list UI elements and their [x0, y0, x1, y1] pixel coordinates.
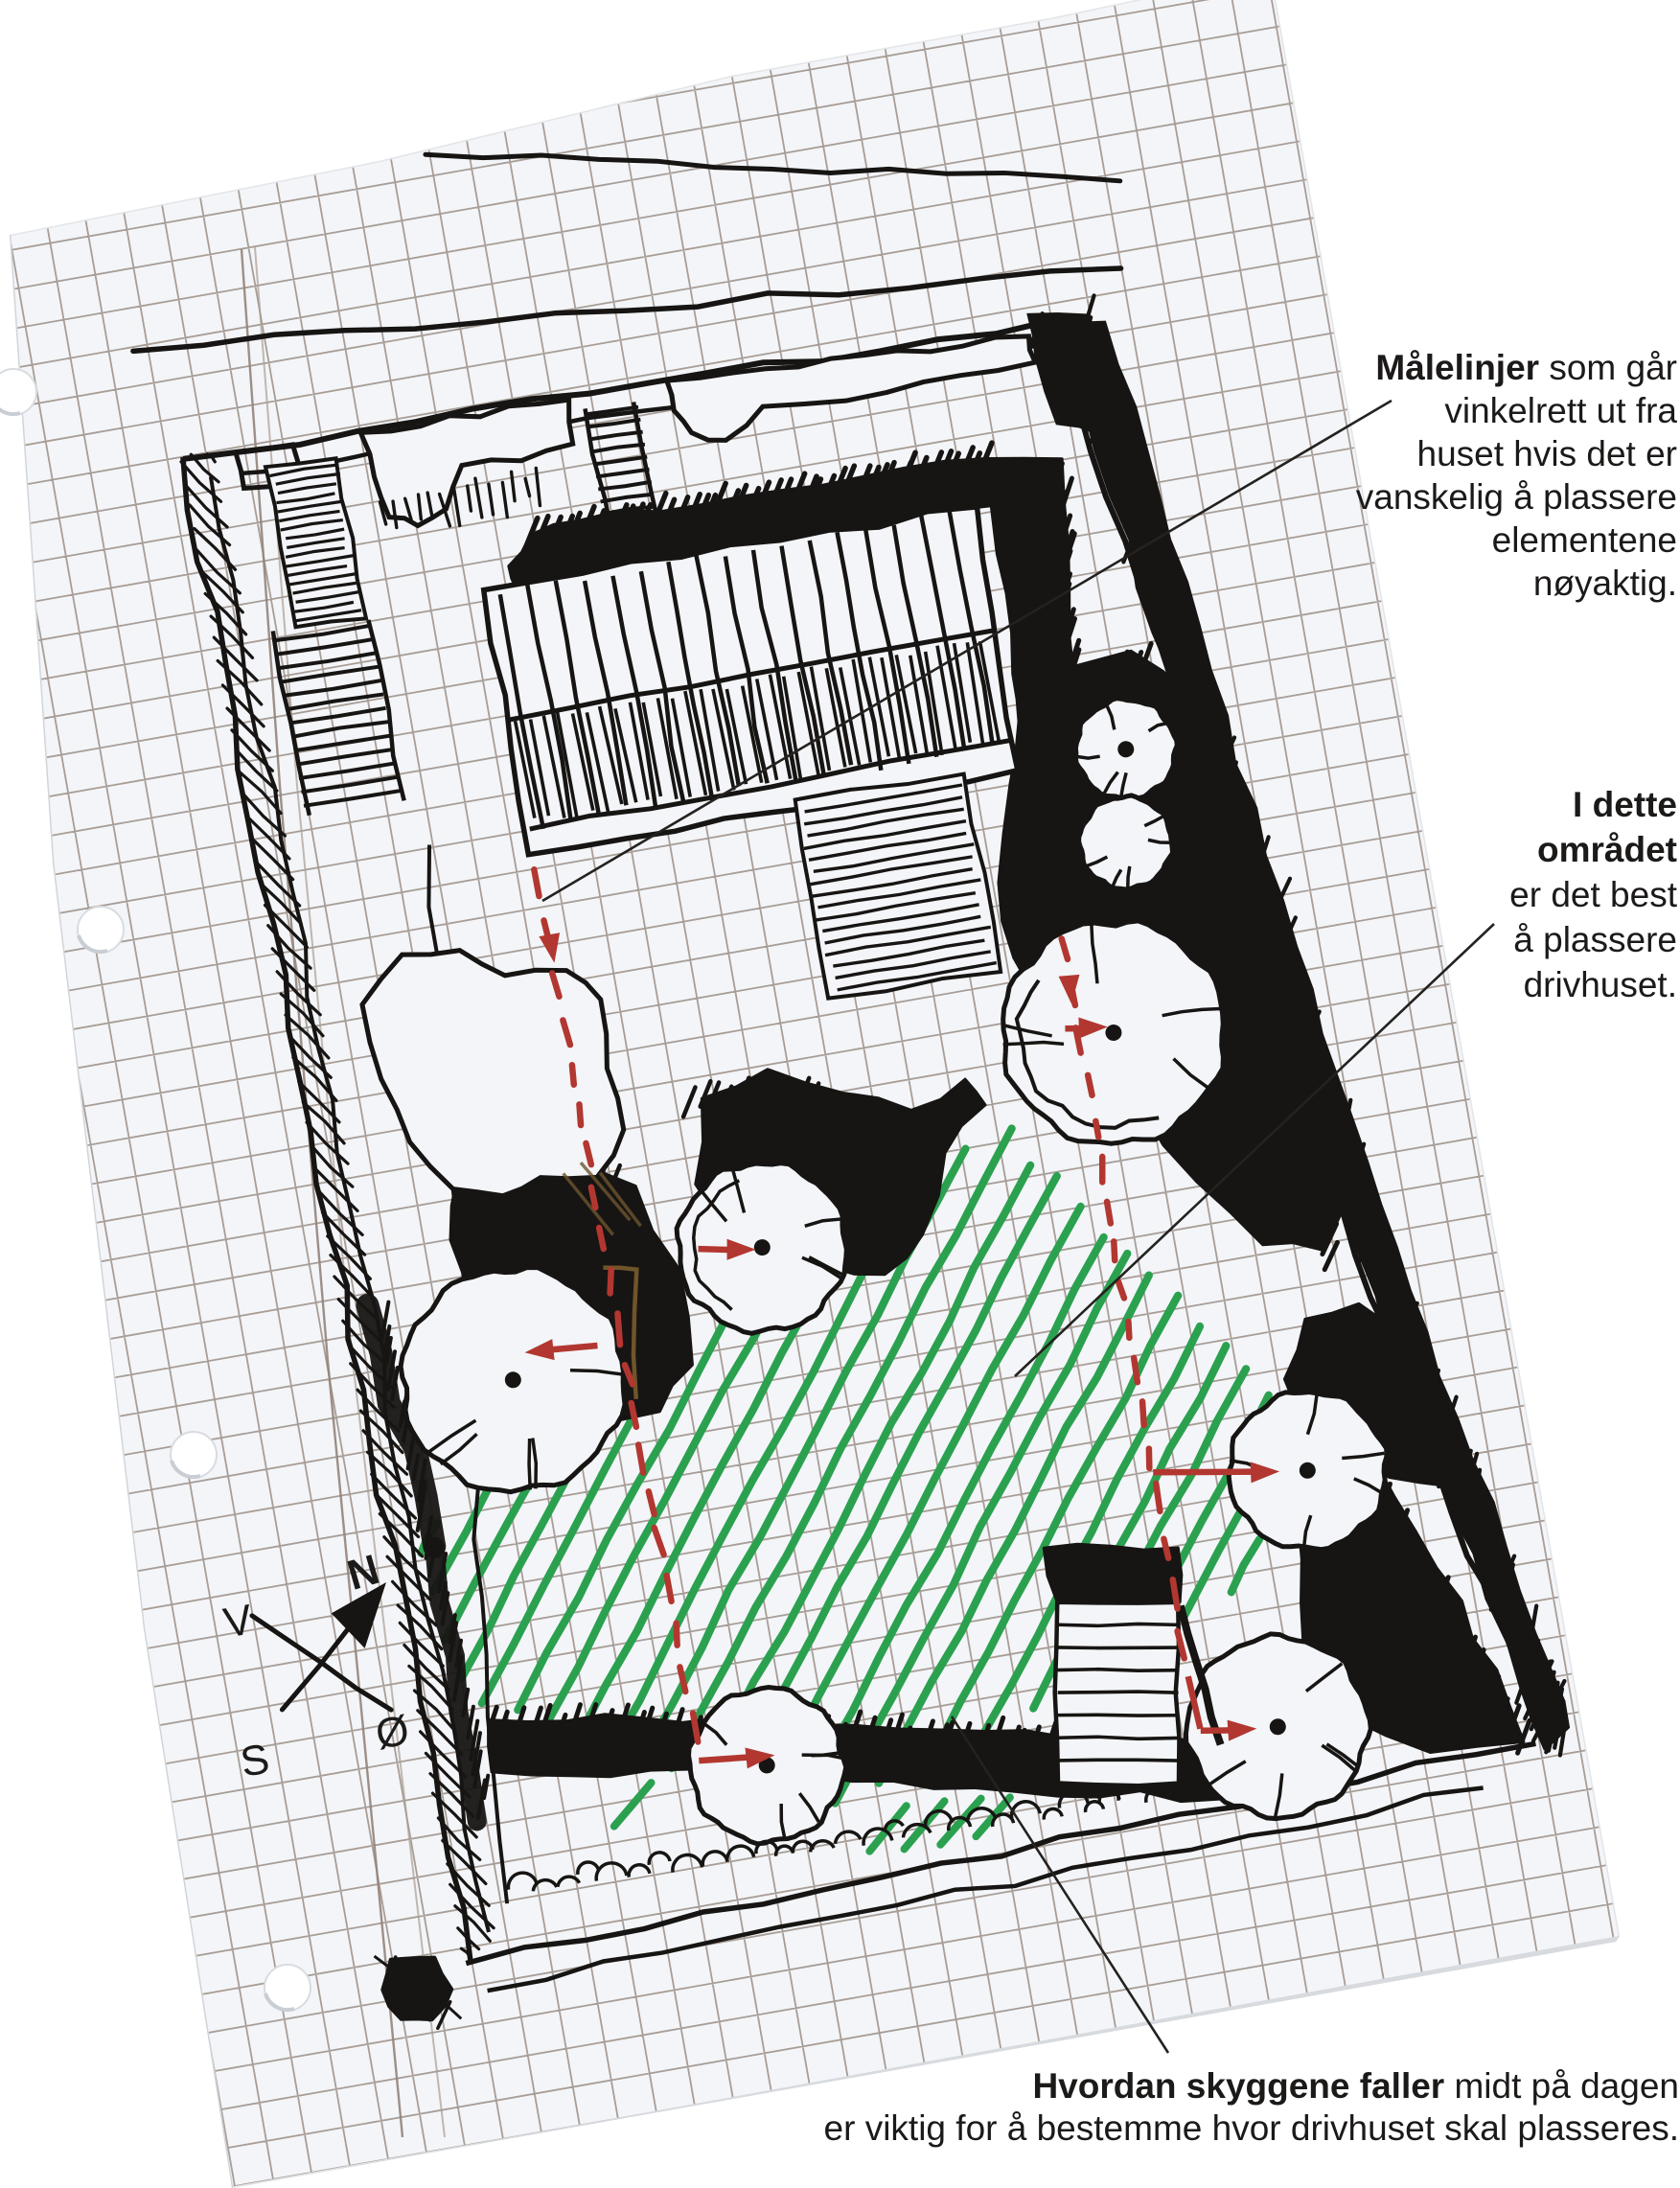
svg-text:vinkelrett ut fra: vinkelrett ut fra [1444, 391, 1677, 430]
svg-text:å plassere: å plassere [1513, 920, 1677, 959]
svg-text:er viktig for å bestemme hvor: er viktig for å bestemme hvor drivhuset … [824, 2108, 1679, 2148]
svg-text:nøyaktig.: nøyaktig. [1533, 564, 1677, 603]
svg-text:I dette: I dette [1573, 785, 1677, 824]
svg-text:drivhuset.: drivhuset. [1524, 965, 1677, 1004]
svg-text:Hvordan skyggene faller midt p: Hvordan skyggene faller midt på dagen [1032, 2066, 1679, 2106]
svg-text:Målelinjer som går: Målelinjer som går [1375, 348, 1677, 387]
svg-text:er det best: er det best [1509, 875, 1678, 914]
svg-text:huset hvis det er: huset hvis det er [1417, 434, 1677, 473]
svg-text:vanskelig å plassere: vanskelig å plassere [1356, 477, 1677, 517]
svg-text:området: området [1537, 830, 1677, 869]
svg-text:elementene: elementene [1492, 520, 1677, 560]
